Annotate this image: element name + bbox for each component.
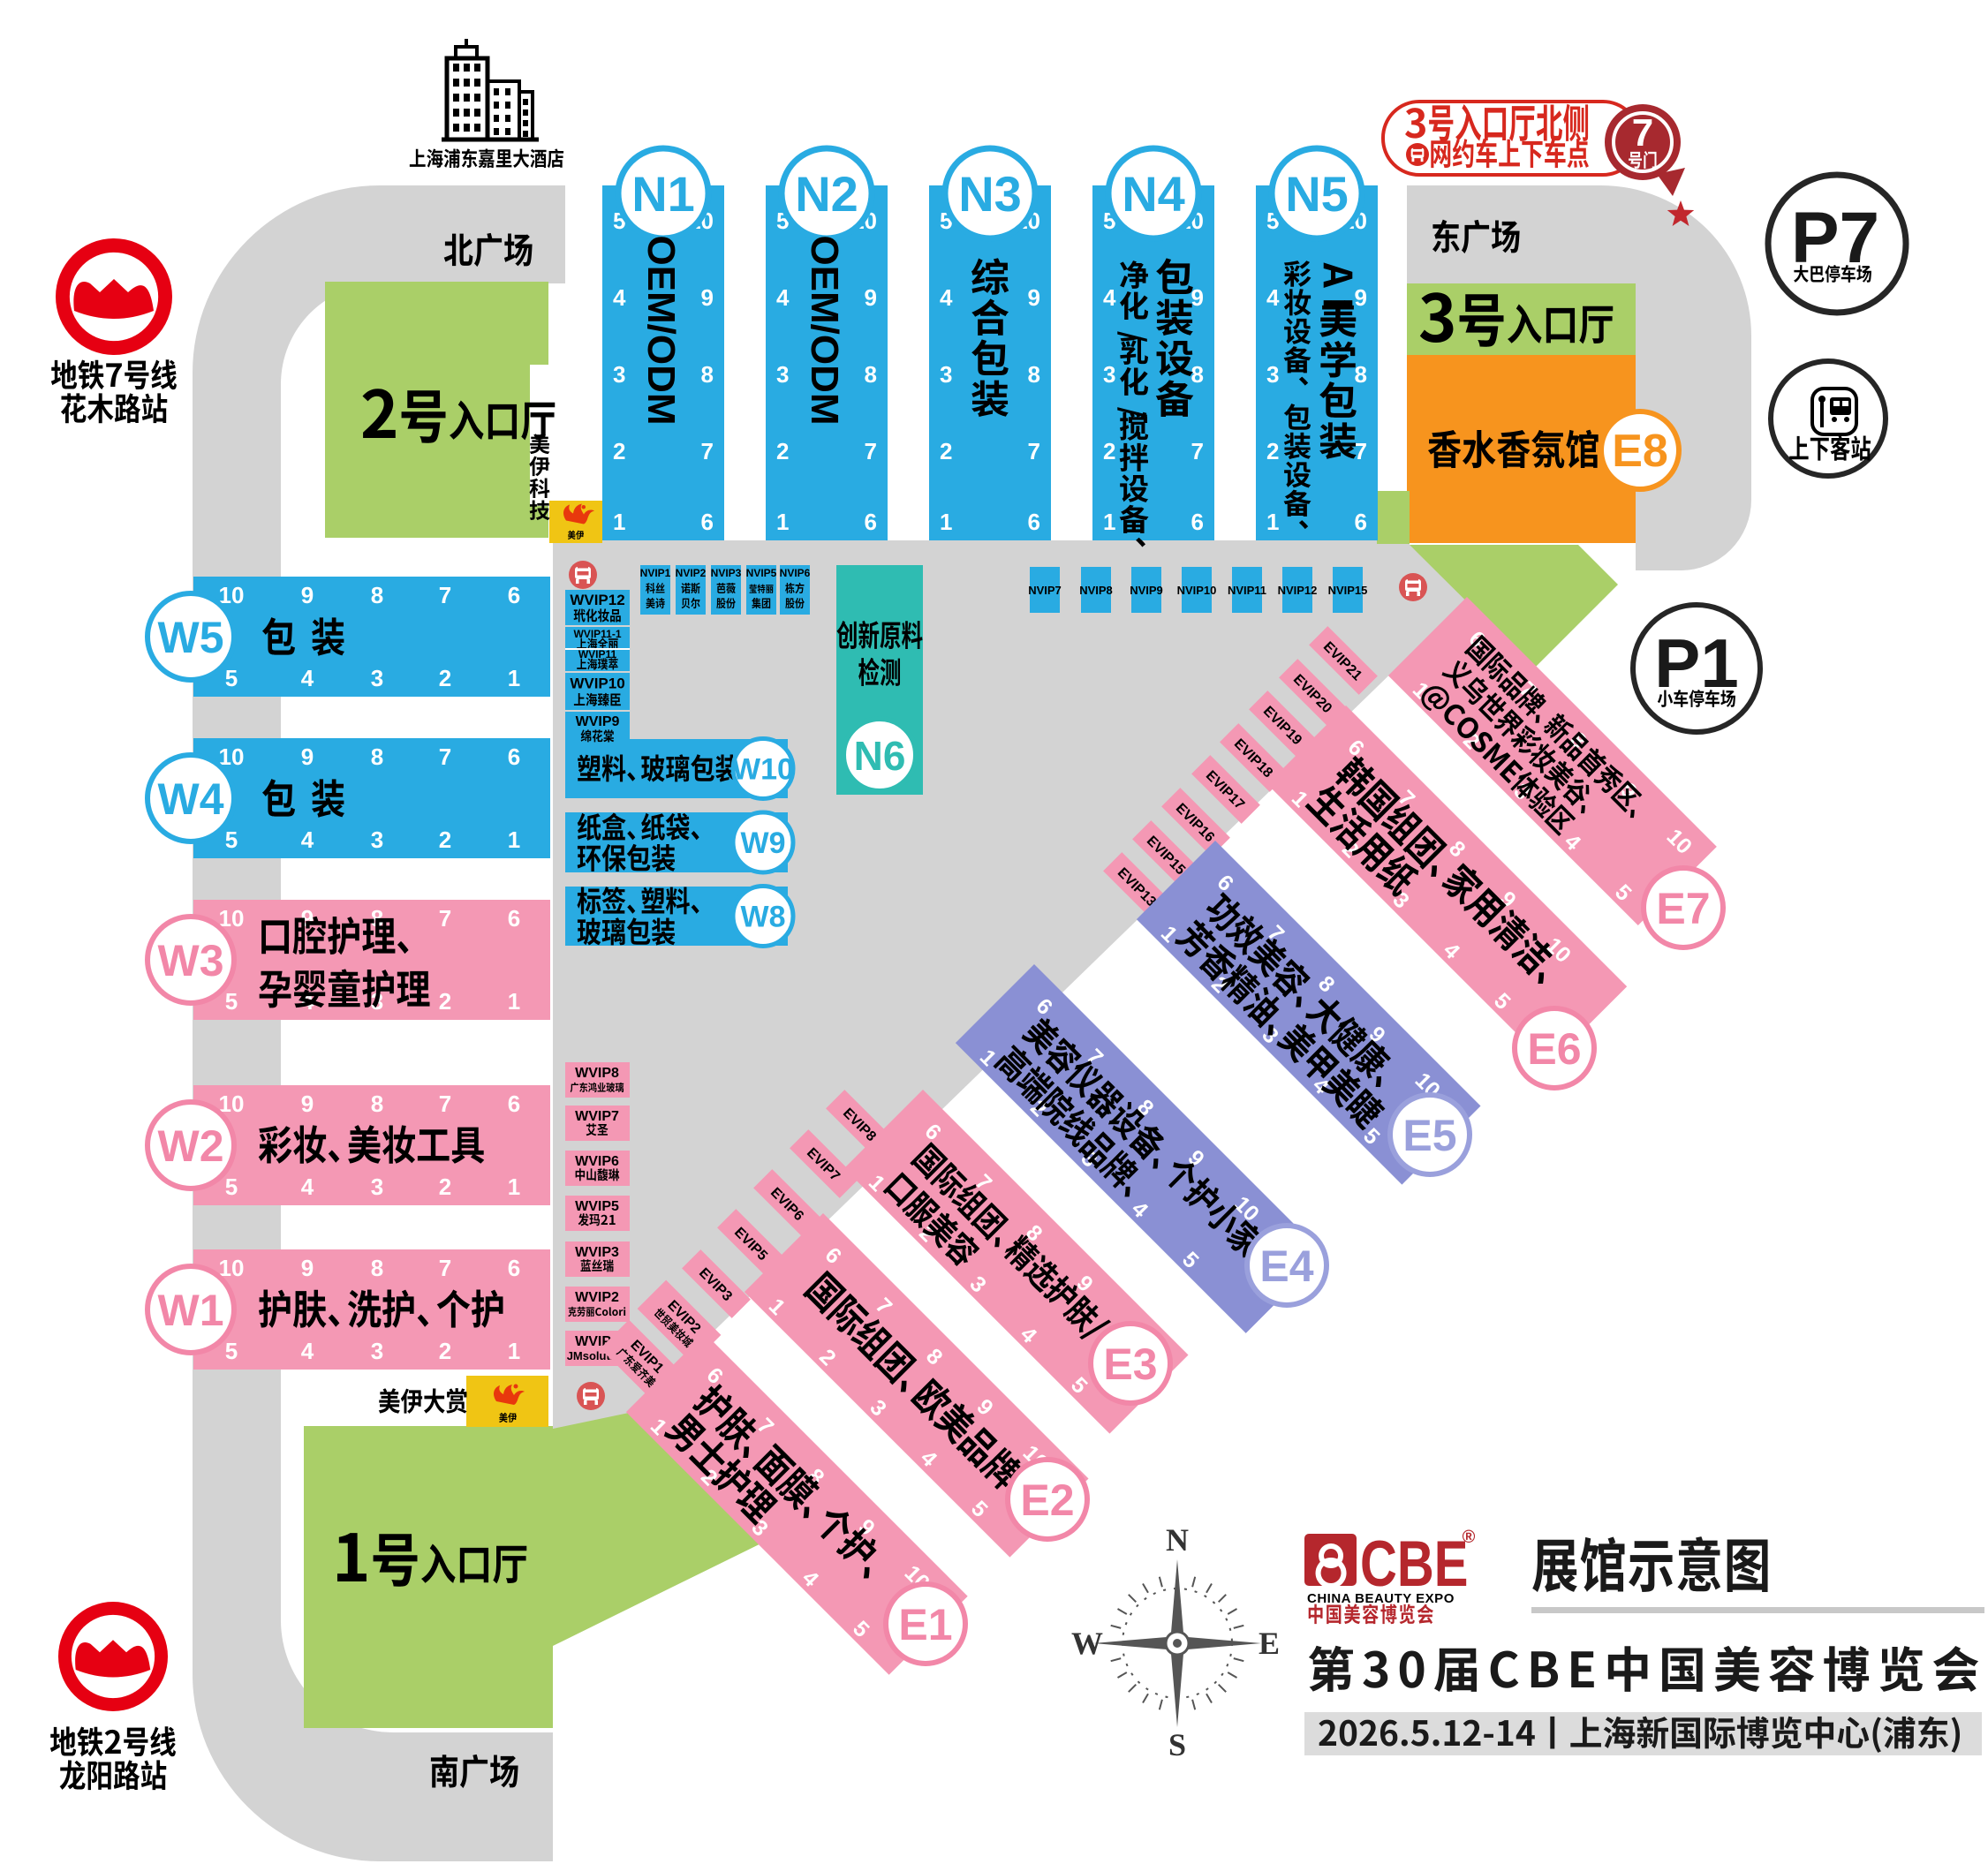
- svg-text:9: 9: [865, 284, 877, 311]
- svg-text:CHINA BEAUTY EXPO: CHINA BEAUTY EXPO: [1307, 1591, 1455, 1606]
- svg-text:1: 1: [508, 826, 520, 853]
- svg-text:NVIP7: NVIP7: [1028, 584, 1062, 597]
- svg-text:4: 4: [301, 826, 314, 853]
- svg-text:3: 3: [371, 826, 383, 853]
- svg-text:P1: P1: [1654, 624, 1738, 702]
- svg-text:8: 8: [865, 361, 877, 388]
- svg-text:4: 4: [1266, 284, 1280, 311]
- svg-text:9: 9: [701, 284, 714, 311]
- svg-text:S: S: [1168, 1727, 1186, 1762]
- svg-text:9: 9: [1355, 284, 1367, 311]
- svg-text:7: 7: [439, 1255, 451, 1281]
- svg-text:N1: N1: [631, 166, 695, 222]
- svg-text:7: 7: [1191, 438, 1204, 464]
- svg-text:8: 8: [371, 1255, 383, 1281]
- svg-text:6: 6: [1191, 509, 1204, 535]
- svg-text:2: 2: [439, 1338, 451, 1364]
- svg-text:3: 3: [613, 361, 625, 388]
- svg-text:8: 8: [371, 743, 383, 770]
- svg-text:N6: N6: [854, 733, 906, 779]
- svg-text:E4: E4: [1259, 1241, 1313, 1291]
- svg-text:6: 6: [508, 905, 520, 932]
- svg-text:4: 4: [301, 1338, 314, 1364]
- svg-text:7: 7: [1355, 438, 1367, 464]
- svg-text:2: 2: [776, 438, 789, 464]
- svg-text:WVIP10: WVIP10: [570, 675, 624, 691]
- svg-text:2: 2: [940, 438, 952, 464]
- svg-text:2: 2: [439, 1173, 451, 1200]
- svg-text:NVIP10: NVIP10: [1177, 584, 1217, 597]
- svg-text:7: 7: [439, 743, 451, 770]
- svg-text:NVIP6: NVIP6: [780, 567, 811, 579]
- svg-text:2: 2: [613, 438, 625, 464]
- svg-text:NVIP5: NVIP5: [746, 567, 777, 579]
- svg-text:W2: W2: [158, 1121, 224, 1171]
- svg-text:NVIP8: NVIP8: [1079, 584, 1113, 597]
- svg-text:W1: W1: [158, 1286, 224, 1335]
- svg-text:®: ®: [1463, 1528, 1476, 1547]
- svg-text:WVIP8: WVIP8: [575, 1066, 619, 1081]
- svg-text:WVIP9: WVIP9: [576, 714, 620, 729]
- svg-text:7: 7: [439, 1090, 451, 1117]
- svg-text:7: 7: [701, 438, 714, 464]
- svg-text:W3: W3: [158, 936, 224, 985]
- svg-text:4: 4: [1103, 284, 1116, 311]
- svg-text:1: 1: [776, 509, 789, 535]
- svg-text:3: 3: [1103, 361, 1115, 388]
- svg-text:4: 4: [301, 1173, 314, 1200]
- svg-text:7: 7: [439, 905, 451, 932]
- svg-text:NVIP11: NVIP11: [1228, 584, 1266, 597]
- svg-text:W5: W5: [158, 613, 224, 662]
- svg-text:1: 1: [508, 988, 520, 1015]
- svg-text:NVIP3: NVIP3: [711, 567, 742, 579]
- svg-text:E: E: [1259, 1626, 1280, 1661]
- svg-text:1: 1: [508, 1173, 520, 1200]
- svg-text:OEM/ODM: OEM/ODM: [803, 235, 846, 425]
- svg-text:NVIP9: NVIP9: [1130, 584, 1163, 597]
- svg-text:6: 6: [508, 1090, 520, 1117]
- svg-text:CBE: CBE: [1360, 1528, 1468, 1600]
- svg-text:5: 5: [225, 1173, 238, 1200]
- svg-text:E8: E8: [1612, 426, 1668, 477]
- svg-text:3: 3: [371, 665, 383, 691]
- svg-text:2: 2: [439, 826, 451, 853]
- svg-text:2: 2: [1266, 438, 1279, 464]
- svg-text:6: 6: [701, 509, 714, 535]
- svg-text:OEM/ODM: OEM/ODM: [639, 235, 683, 425]
- svg-text:W9: W9: [741, 826, 786, 860]
- svg-text:WVIP12: WVIP12: [570, 592, 624, 608]
- svg-text:1: 1: [1103, 509, 1115, 535]
- svg-text:WVIP5: WVIP5: [575, 1199, 619, 1214]
- svg-text:WVIP6: WVIP6: [575, 1154, 619, 1169]
- svg-text:3: 3: [371, 1173, 383, 1200]
- svg-text:8: 8: [1191, 361, 1204, 388]
- svg-text:6: 6: [508, 582, 520, 608]
- svg-text:8: 8: [371, 582, 383, 608]
- svg-text:9: 9: [301, 1255, 314, 1281]
- svg-text:1: 1: [613, 509, 625, 535]
- svg-text:6: 6: [508, 1255, 520, 1281]
- svg-text:E5: E5: [1402, 1111, 1456, 1160]
- svg-text:9: 9: [301, 582, 314, 608]
- svg-text:5: 5: [225, 1338, 238, 1364]
- svg-text:WVIP7: WVIP7: [575, 1109, 619, 1124]
- svg-text:7: 7: [439, 582, 451, 608]
- svg-text:E2: E2: [1020, 1475, 1074, 1525]
- svg-text:N5: N5: [1285, 166, 1349, 222]
- svg-text:N4: N4: [1122, 166, 1185, 222]
- svg-text:E1: E1: [898, 1600, 952, 1649]
- svg-text:6: 6: [508, 743, 520, 770]
- svg-text:8: 8: [701, 361, 714, 388]
- svg-text:W4: W4: [158, 774, 224, 824]
- svg-text:8: 8: [1028, 361, 1040, 388]
- svg-text:3: 3: [940, 361, 952, 388]
- svg-text:5: 5: [225, 826, 238, 853]
- svg-text:W8: W8: [741, 901, 786, 934]
- svg-text:NVIP1: NVIP1: [640, 567, 671, 579]
- svg-text:4: 4: [613, 284, 626, 311]
- svg-text:4: 4: [940, 284, 953, 311]
- svg-text:1: 1: [940, 509, 952, 535]
- svg-text:N: N: [1166, 1522, 1189, 1558]
- svg-text:E7: E7: [1656, 884, 1710, 933]
- svg-text:1: 1: [508, 1338, 520, 1364]
- svg-text:5: 5: [225, 988, 238, 1015]
- svg-text:W10: W10: [732, 753, 794, 787]
- svg-text:8: 8: [1355, 361, 1367, 388]
- svg-text:9: 9: [301, 1090, 314, 1117]
- svg-text:4: 4: [776, 284, 790, 311]
- svg-text:9: 9: [301, 743, 314, 770]
- svg-text:NVIP2: NVIP2: [676, 567, 707, 579]
- svg-text:W: W: [1071, 1626, 1103, 1661]
- svg-text:9: 9: [1191, 284, 1204, 311]
- svg-text:6: 6: [865, 509, 877, 535]
- svg-text:NVIP15: NVIP15: [1328, 584, 1368, 597]
- svg-text:2: 2: [439, 665, 451, 691]
- svg-text:E3: E3: [1103, 1340, 1157, 1389]
- svg-text:4: 4: [301, 665, 314, 691]
- svg-text:WVIP2: WVIP2: [575, 1290, 619, 1305]
- svg-text:5: 5: [225, 665, 238, 691]
- svg-text:N3: N3: [958, 166, 1022, 222]
- svg-text:9: 9: [1028, 284, 1040, 311]
- svg-text:2: 2: [1103, 438, 1115, 464]
- svg-text:8: 8: [371, 1090, 383, 1117]
- svg-text:6: 6: [1028, 509, 1040, 535]
- svg-text:E6: E6: [1527, 1024, 1581, 1074]
- svg-text:7: 7: [1632, 111, 1653, 155]
- svg-text:2: 2: [439, 988, 451, 1015]
- svg-text:WVIP3: WVIP3: [575, 1245, 619, 1260]
- svg-text:3: 3: [776, 361, 789, 388]
- svg-text:3: 3: [1266, 361, 1279, 388]
- svg-text:6: 6: [1355, 509, 1367, 535]
- svg-text:NVIP12: NVIP12: [1278, 584, 1318, 597]
- svg-text:7: 7: [1028, 438, 1040, 464]
- svg-text:1: 1: [508, 665, 520, 691]
- svg-text:3: 3: [371, 1338, 383, 1364]
- svg-text:1: 1: [1266, 509, 1279, 535]
- svg-text:7: 7: [865, 438, 877, 464]
- svg-text:N2: N2: [795, 166, 858, 222]
